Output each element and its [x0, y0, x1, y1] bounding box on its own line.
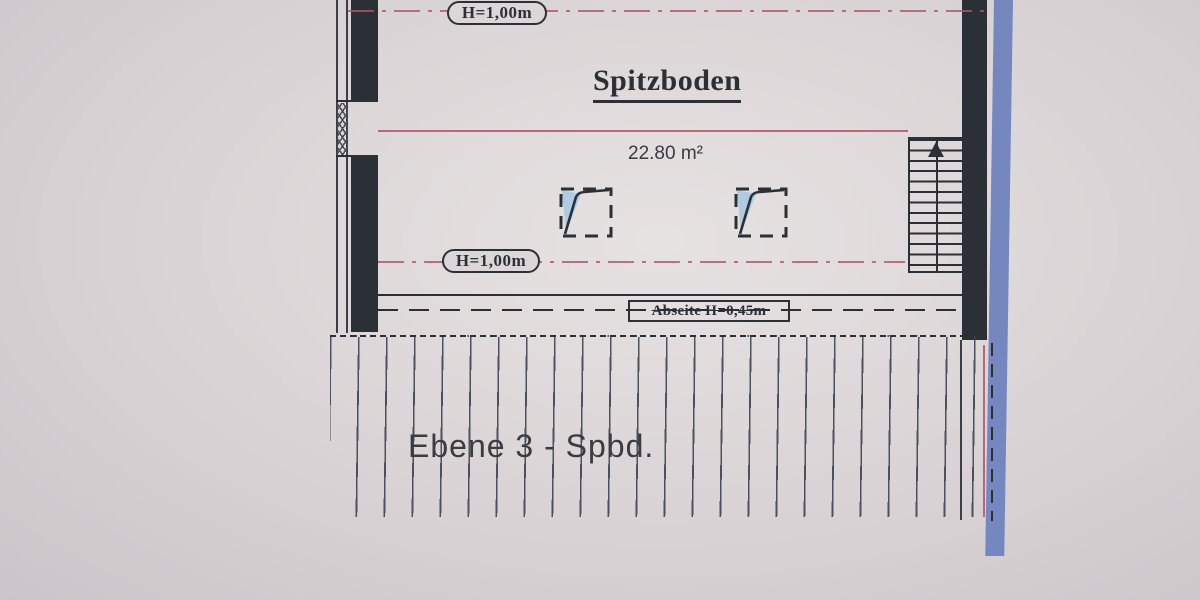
left-wall-outer-line — [336, 0, 338, 333]
height-label-mid: H=1,00m — [442, 249, 540, 273]
plan-title: Spitzboden — [593, 64, 741, 103]
left-wall-inner-line — [346, 0, 348, 333]
right-boundary-dashed-line — [991, 343, 993, 521]
level-label: Ebene 3 - Spbd. — [408, 428, 654, 465]
area-label: 22.80 m² — [628, 143, 703, 165]
height-label-top: H=1,00m — [447, 1, 547, 25]
roof-hatch-area — [330, 335, 986, 517]
height-label-mid-text: H=1,00m — [456, 251, 526, 271]
roof-window-symbol-left — [557, 184, 615, 240]
left-wall-upper-segment — [351, 0, 378, 102]
height-line-top — [348, 10, 992, 12]
kneewall-solid-line — [378, 294, 962, 296]
abseite-label-text: Abseite H=0,45m — [652, 303, 767, 320]
window-sill-top-line — [336, 100, 378, 102]
floor-plan-photo: H=1,00m Spitzboden 22.80 m² H=1,00m Abse… — [0, 0, 1200, 600]
abseite-label-box: Abseite H=0,45m — [628, 300, 790, 322]
height-label-top-text: H=1,00m — [462, 3, 532, 23]
window-insulation-hatch — [337, 103, 348, 157]
left-wall-lower-segment — [351, 157, 378, 332]
roof-window-symbol-right — [732, 184, 790, 240]
right-wall — [962, 0, 987, 340]
collar-height-line — [378, 130, 908, 132]
right-boundary-accent-line — [983, 345, 985, 517]
page-edge-stripe — [985, 0, 1013, 556]
staircase-center-line — [936, 139, 938, 271]
staircase — [908, 137, 964, 273]
right-boundary-solid-line — [960, 340, 962, 520]
stair-up-arrow-icon — [928, 142, 944, 157]
